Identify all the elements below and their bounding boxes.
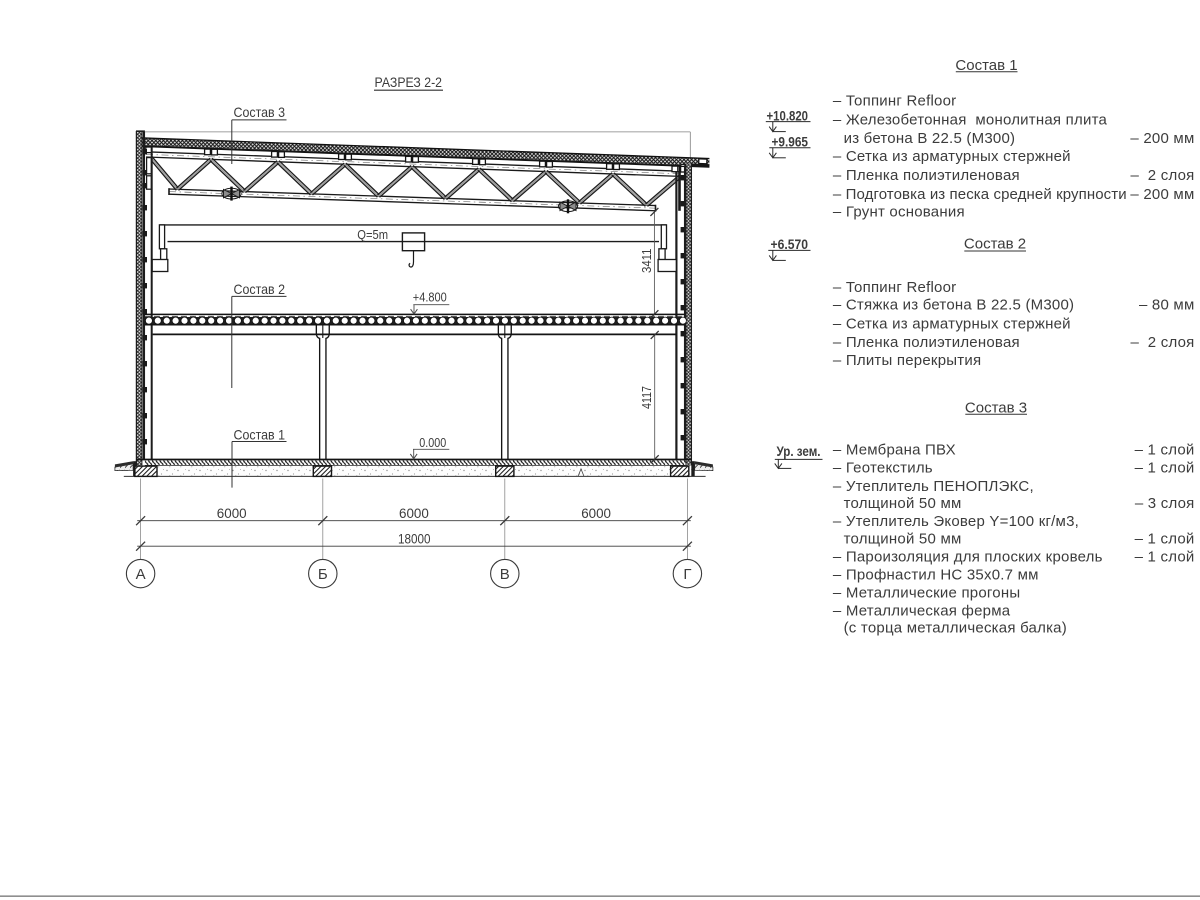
svg-text:– Сетка из арматурных стержней: – Сетка из арматурных стержней — [833, 148, 1071, 165]
svg-text:– Железобетонная монолитная п: – Железобетонная монолитная плита — [833, 111, 1108, 128]
svg-text:– Пленка полиэтиленовая: – Пленка полиэтиленовая — [833, 167, 1020, 184]
svg-text:РАЗРЕЗ 2-2: РАЗРЕЗ 2-2 — [375, 75, 443, 90]
svg-text:Q=5m: Q=5m — [357, 227, 388, 242]
svg-text:– Плиты перекрытия: – Плиты перекрытия — [833, 352, 981, 369]
svg-text:+9.965: +9.965 — [772, 134, 809, 149]
svg-text:– Металлические прогоны: – Металлические прогоны — [833, 584, 1020, 601]
svg-text:– Топпинг Refloor: – Топпинг Refloor — [833, 279, 956, 296]
svg-text:18000: 18000 — [398, 532, 431, 548]
svg-text:0.000: 0.000 — [419, 435, 446, 450]
svg-text:– 1 слой: – 1 слой — [1135, 549, 1195, 566]
svg-text:– 1 слой: – 1 слой — [1135, 459, 1195, 476]
svg-text:– 3 слоя: – 3 слоя — [1135, 495, 1195, 512]
svg-text:Состав 2: Состав 2 — [964, 236, 1026, 253]
svg-text:(с торца металлическая балка): (с торца металлическая балка) — [844, 620, 1067, 637]
svg-text:– Утеплитель Эковер Y=100 кг/м: – Утеплитель Эковер Y=100 кг/м3, — [833, 513, 1079, 530]
svg-text:– 1 слой: – 1 слой — [1135, 531, 1195, 548]
svg-text:– Геотекстиль: – Геотекстиль — [833, 459, 933, 476]
svg-text:Состав 1: Состав 1 — [234, 427, 286, 442]
svg-text:– Сетка из арматурных стержней: – Сетка из арматурных стержней — [833, 316, 1071, 333]
svg-text:– Металлическая ферма: – Металлическая ферма — [833, 602, 1011, 619]
svg-text:+6.570: +6.570 — [771, 237, 809, 252]
svg-text:– Профнастил НС 35х0.7 мм: – Профнастил НС 35х0.7 мм — [833, 567, 1039, 584]
svg-text:– 200 мм: – 200 мм — [1130, 130, 1194, 147]
svg-text:6000: 6000 — [399, 506, 429, 522]
svg-text:6000: 6000 — [581, 506, 611, 522]
svg-text:+4.800: +4.800 — [413, 290, 447, 305]
svg-text:4117: 4117 — [640, 386, 654, 409]
svg-text:– Пароизоляция для плоских кро: – Пароизоляция для плоских кровель — [833, 549, 1103, 566]
svg-text:– Топпинг Refloor: – Топпинг Refloor — [833, 92, 956, 109]
svg-text:6000: 6000 — [217, 506, 247, 522]
svg-text:Состав 3: Состав 3 — [234, 105, 286, 120]
svg-text:– 2 слоя: – 2 слоя — [1130, 334, 1194, 351]
svg-text:толщиной 50 мм: толщиной 50 мм — [844, 495, 962, 512]
svg-text:– Пленка полиэтиленовая: – Пленка полиэтиленовая — [833, 334, 1020, 351]
svg-text:– 200 мм: – 200 мм — [1130, 186, 1194, 203]
svg-text:– 2 слоя: – 2 слоя — [1130, 167, 1194, 184]
svg-text:В: В — [500, 566, 510, 583]
svg-text:А: А — [136, 566, 146, 583]
svg-text:Ур. зем.: Ур. зем. — [777, 444, 821, 459]
svg-text:– 80 мм: – 80 мм — [1139, 297, 1195, 314]
svg-text:Г: Г — [683, 566, 691, 583]
svg-text:– Утеплитель ПЕНОПЛЭКС,: – Утеплитель ПЕНОПЛЭКС, — [833, 478, 1034, 495]
svg-text:– Грунт основания: – Грунт основания — [833, 204, 965, 221]
svg-text:3411: 3411 — [640, 249, 654, 274]
svg-text:– Мембрана ПВХ: – Мембрана ПВХ — [833, 441, 956, 458]
svg-text:из бетона В 22.5 (М300): из бетона В 22.5 (М300) — [844, 130, 1016, 147]
svg-text:Состав 2: Состав 2 — [234, 282, 286, 297]
svg-text:– Подготовка из песка средней: – Подготовка из песка средней крупности — [833, 186, 1127, 203]
svg-text:толщиной 50 мм: толщиной 50 мм — [844, 531, 962, 548]
svg-text:Б: Б — [318, 566, 328, 583]
svg-text:– Стяжка из бетона В 22.5 (М30: – Стяжка из бетона В 22.5 (М300) — [833, 297, 1074, 314]
svg-text:– 1 слой: – 1 слой — [1135, 441, 1195, 458]
